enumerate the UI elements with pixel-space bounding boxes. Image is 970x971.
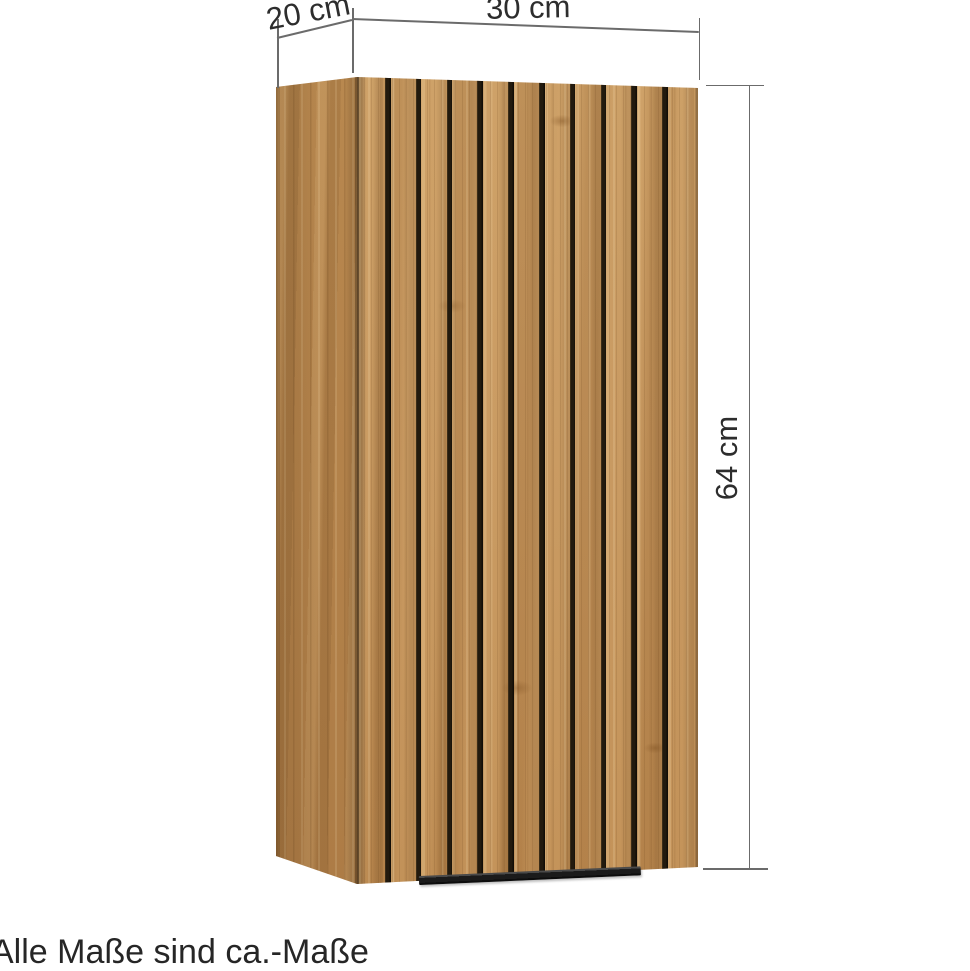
height-dimension-line <box>749 85 751 869</box>
measurements-footnote: Alle Maße sind ca.-Maße <box>0 933 369 971</box>
slat-groove <box>447 76 453 886</box>
cabinet-side-panel <box>276 76 357 886</box>
slat-groove <box>662 76 668 886</box>
width-dimension-label: 30 cm <box>486 0 571 26</box>
height-extension-line-bottom <box>703 868 768 870</box>
slat-groove <box>477 76 483 886</box>
product-dimension-diagram: 20 cm 30 cm 64 cm Alle Maße sind ca.-Maß… <box>0 0 970 971</box>
height-dimension-label: 64 cm <box>710 416 744 500</box>
slat-groove <box>570 76 576 886</box>
height-extension-line-top <box>706 85 764 87</box>
depth-dimension-label: 20 cm <box>264 0 353 37</box>
slat-groove <box>539 76 545 886</box>
slat-groove <box>508 76 514 886</box>
width-extension-line-right <box>699 18 701 80</box>
slat-groove <box>385 76 391 886</box>
slat-groove <box>601 76 607 886</box>
cabinet-front-door <box>357 76 698 886</box>
slat-groove <box>416 76 422 886</box>
slat-groove <box>631 76 637 886</box>
